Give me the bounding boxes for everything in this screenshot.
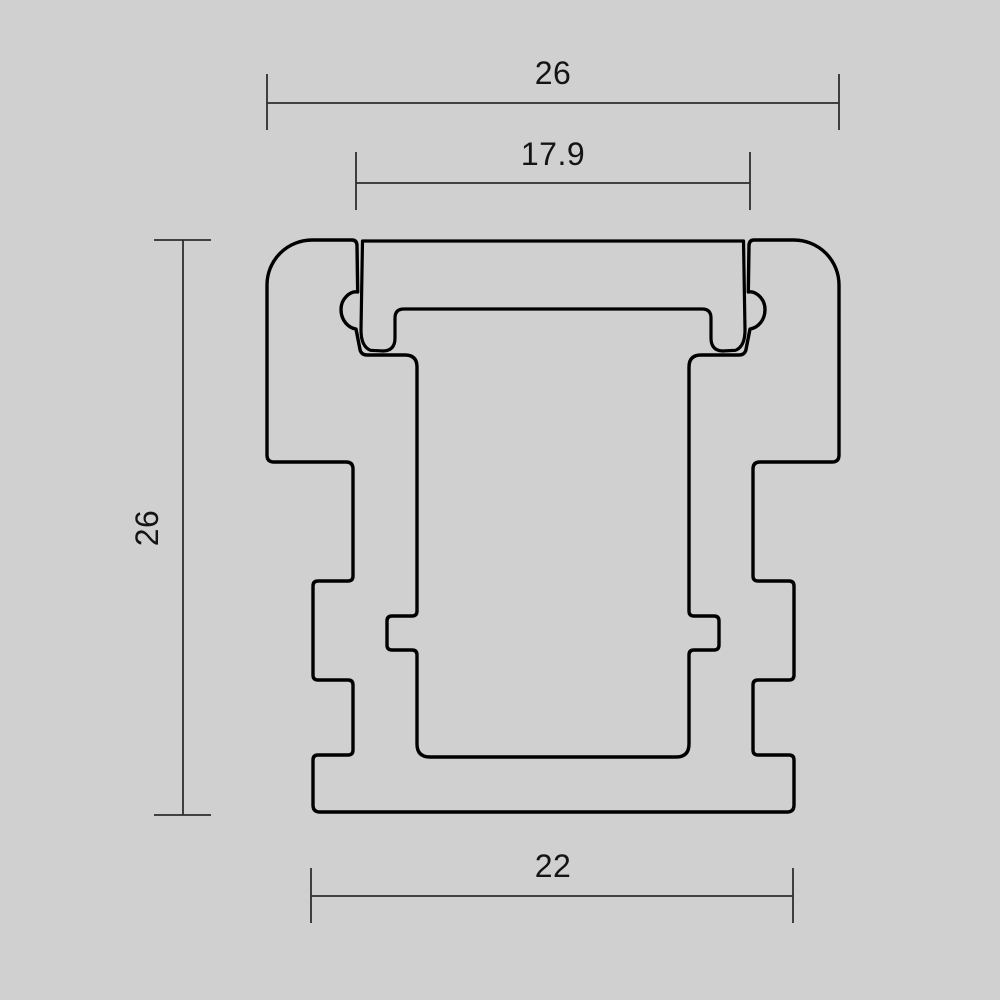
dimension-label-base-width: 22 <box>535 848 572 884</box>
technical-drawing: 26 17.9 26 22 <box>0 0 1000 1000</box>
dimension-label-overall-height: 26 <box>129 510 165 547</box>
drawing-background <box>0 0 1000 1000</box>
dimension-label-opening-width: 17.9 <box>521 136 585 172</box>
dimension-label-overall-width: 26 <box>535 55 572 91</box>
